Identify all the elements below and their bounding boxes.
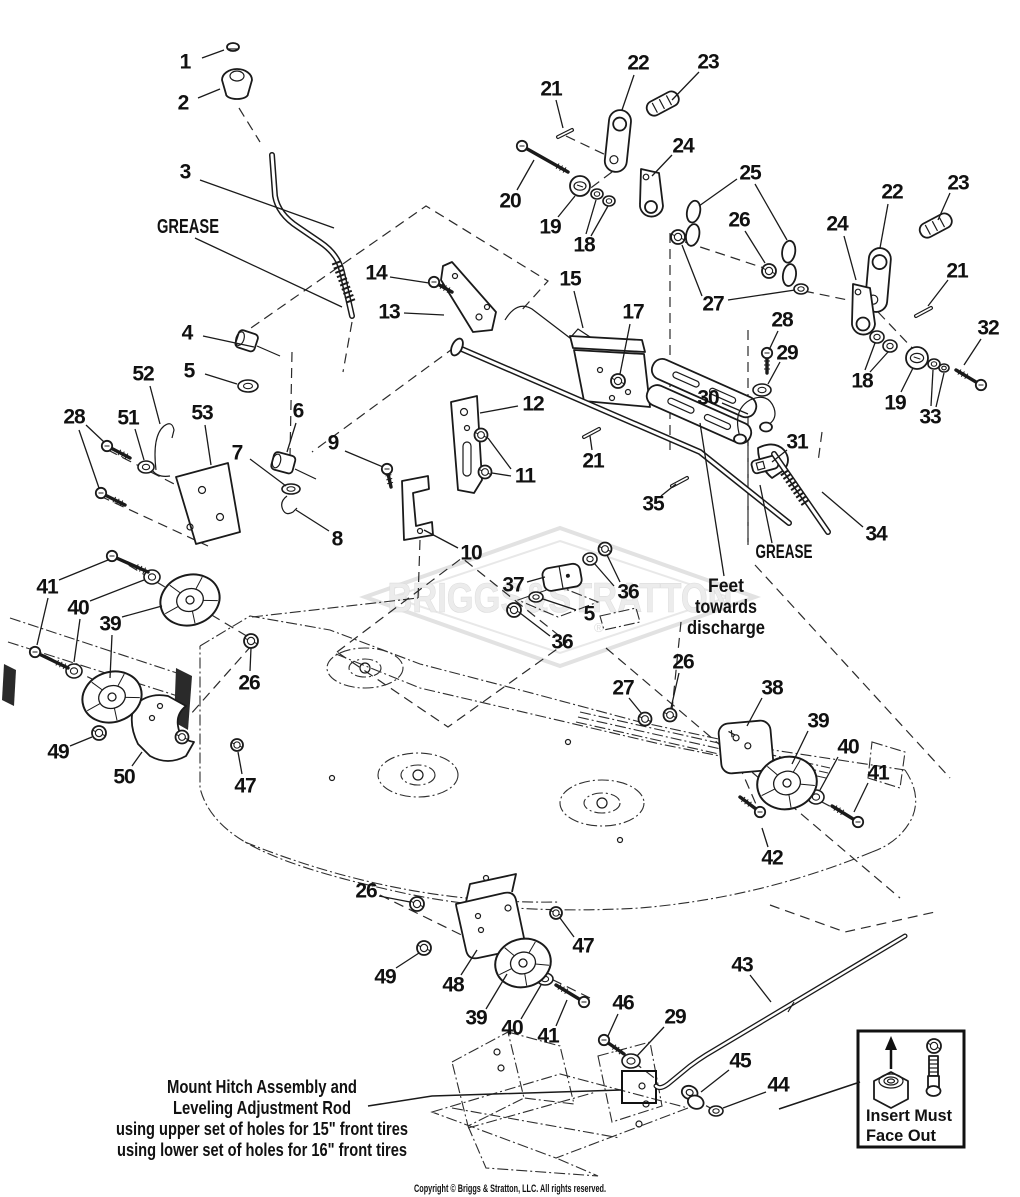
bolt (740, 797, 765, 817)
leader-line (205, 374, 237, 384)
grease-left-leader (195, 238, 342, 307)
leader-line (37, 598, 48, 645)
leader-line (701, 1070, 729, 1092)
lever-rod-part-3 (272, 155, 352, 316)
nut (417, 941, 431, 955)
part-callout-51: 51 (117, 407, 140, 430)
part-callout-25: 25 (739, 162, 762, 185)
bracket-part-10 (402, 476, 433, 540)
part-callout-39: 39 (807, 710, 829, 733)
bolt (96, 488, 125, 506)
spindle-boss-right (560, 780, 644, 826)
nut (611, 374, 625, 388)
part-callout-28: 28 (63, 406, 86, 429)
insert-note-box: Insert Must Face Out (858, 1031, 964, 1147)
part-callout-24: 24 (672, 135, 695, 158)
leader-line (238, 752, 242, 774)
leader-line (964, 339, 981, 365)
leader-line (480, 406, 518, 413)
part-callout-52: 52 (132, 363, 154, 386)
part-callout-17: 17 (622, 301, 644, 324)
washer (709, 1106, 723, 1116)
part-callout-26: 26 (672, 651, 694, 674)
part-callout-24: 24 (826, 213, 849, 236)
part-callout-45: 45 (729, 1050, 752, 1073)
grease-label-left: GREASE (157, 216, 219, 238)
bolt (832, 806, 863, 828)
leader-line (202, 50, 224, 58)
link-part-22-top (604, 109, 632, 173)
leader-line (865, 343, 875, 370)
part-callout-10: 10 (460, 542, 482, 565)
part-callout-21: 21 (540, 78, 563, 101)
insert-box-leader (779, 1082, 860, 1109)
hardware-parts (30, 130, 986, 1116)
washer (883, 340, 897, 352)
leader-line (396, 953, 419, 968)
leader-line (556, 1000, 567, 1026)
leader-line (723, 1092, 766, 1108)
leader-line (198, 89, 220, 98)
washer (529, 592, 543, 602)
leader-line (936, 373, 944, 407)
part-callout-36: 36 (617, 581, 639, 604)
leader-line (750, 975, 771, 1002)
leader-line (928, 280, 948, 306)
adjuster-knob (906, 347, 928, 369)
bolt (556, 985, 589, 1008)
insert-note-line-2: Face Out (866, 1126, 936, 1145)
leader-line (854, 783, 868, 812)
spindle-boss-left (327, 648, 403, 688)
part-callout-5: 5 (584, 603, 596, 626)
lift-lever-assembly (222, 43, 352, 316)
part-callout-28: 28 (771, 309, 794, 332)
gauge-wheel (154, 567, 227, 633)
nut (762, 264, 776, 278)
pin (584, 429, 599, 437)
washer (66, 664, 82, 678)
spring-part-23-right (917, 211, 954, 240)
part-callout-39: 39 (465, 1007, 487, 1030)
feet-note-leader (700, 423, 724, 576)
part-callout-46: 46 (612, 992, 634, 1015)
part-callout-12: 12 (522, 393, 544, 416)
copyright-text: Copyright © Briggs & Stratton, LLC. All … (414, 1183, 606, 1195)
leader-line (200, 180, 334, 228)
leader-line (637, 1027, 664, 1056)
part-callout-41: 41 (36, 576, 59, 599)
part-callout-18: 18 (573, 234, 596, 257)
leader-line (521, 985, 541, 1019)
part-callout-40: 40 (67, 597, 89, 620)
nut (671, 230, 685, 244)
part-callout-47: 47 (572, 935, 594, 958)
part-callout-40: 40 (837, 736, 859, 759)
mount-note-line-2: Leveling Adjustment Rod (173, 1098, 351, 1118)
leader-line (558, 196, 575, 217)
washer (603, 196, 615, 206)
lever-part-24-top (640, 169, 663, 217)
bracket-part-13 (441, 262, 496, 332)
leader-line (517, 160, 534, 190)
part-callout-49: 49 (47, 741, 69, 764)
leader-line (79, 430, 99, 488)
leader-line (880, 204, 888, 248)
mount-note-line-1: Mount Hitch Assembly and (167, 1077, 357, 1097)
bolt (599, 1035, 624, 1054)
part-callout-48: 48 (442, 974, 465, 997)
leader-line (135, 429, 144, 460)
part-callout-22: 22 (627, 52, 649, 75)
leader-line (629, 698, 642, 714)
part-callout-49: 49 (374, 966, 396, 989)
bracket-part-53 (176, 463, 240, 544)
bolt (956, 369, 986, 390)
part-callout-20: 20 (499, 190, 521, 213)
part-callout-11: 11 (515, 465, 537, 488)
feet-note-line-3: discharge (687, 618, 765, 639)
leader-line (672, 72, 699, 100)
bracket-part-12 (451, 396, 482, 493)
part-callout-1: 1 (180, 51, 192, 74)
leader-line (59, 560, 108, 580)
nut (475, 429, 488, 442)
gauge-wheel-brackets (132, 695, 774, 958)
part-callout-19: 19 (539, 216, 561, 239)
part-callout-27: 27 (702, 293, 724, 316)
part-callout-31: 31 (786, 431, 809, 454)
leader-line (404, 313, 444, 315)
spindle-boss-center (378, 753, 458, 797)
washer (939, 364, 949, 372)
leader-line (390, 277, 429, 283)
bolt (102, 441, 130, 459)
grease-label-right: GREASE (756, 542, 813, 563)
nut (927, 1039, 941, 1053)
nut (550, 907, 562, 919)
nut (231, 739, 243, 751)
part-callout-32: 32 (977, 317, 999, 340)
pin (558, 130, 572, 137)
washer (928, 359, 940, 369)
leader-line (699, 179, 737, 206)
part-callout-6: 6 (293, 400, 304, 423)
leader-line (728, 290, 795, 300)
nut (92, 726, 106, 740)
washer (794, 284, 808, 294)
pin (916, 308, 931, 316)
leader-line (90, 580, 144, 601)
leader-line (250, 648, 251, 671)
leader-line (574, 291, 583, 328)
nut (479, 466, 492, 479)
part-callout-36: 36 (551, 631, 573, 654)
leader-line (345, 451, 383, 467)
leader-line (901, 368, 913, 392)
leader-line (652, 155, 672, 176)
mount-note-line-3: using upper set of holes for 15" front t… (116, 1119, 408, 1139)
leader-line (745, 231, 765, 263)
mount-note-leader (368, 1090, 621, 1106)
part-callout-37: 37 (502, 574, 524, 597)
cap-part-1 (227, 43, 239, 51)
leader-line (486, 974, 507, 1009)
leader-line (122, 606, 162, 617)
part-callout-26: 26 (238, 672, 260, 695)
part-callout-29: 29 (664, 1006, 686, 1029)
leader-line (844, 236, 856, 280)
insert-note-line-1: Insert Must (866, 1106, 952, 1125)
part-callout-15: 15 (559, 268, 582, 291)
washer (138, 461, 154, 473)
leader-line (755, 184, 787, 240)
registered-mark: ® (594, 620, 604, 635)
feet-note-line-1: Feet (708, 576, 745, 597)
leader-line (682, 245, 702, 296)
coupler-part-6-7 (270, 451, 296, 474)
part-callout-38: 38 (761, 677, 784, 700)
chain-part-25-right (778, 240, 801, 287)
bolt (382, 464, 393, 487)
wire-part-52 (152, 424, 174, 477)
part-callout-19: 19 (884, 392, 906, 415)
leader-line (287, 423, 296, 452)
leader-line (822, 492, 863, 527)
lock-nut-illustration (874, 1072, 908, 1108)
nut (176, 731, 189, 744)
leader-line (492, 473, 511, 476)
part-callout-13: 13 (378, 301, 400, 324)
bolt (107, 551, 148, 573)
part-callout-7: 7 (232, 442, 243, 465)
part-callout-35: 35 (642, 493, 665, 516)
part-callout-8: 8 (332, 528, 344, 551)
leader-line (931, 370, 933, 406)
leader-line (150, 386, 160, 424)
feet-note-line-2: towards (695, 597, 757, 618)
part-callout-2: 2 (178, 92, 189, 115)
part-callout-21: 21 (946, 260, 969, 283)
bolt-illustration (927, 1056, 941, 1096)
part-callout-9: 9 (328, 432, 339, 455)
part-callout-3: 3 (180, 161, 191, 184)
part-callout-41: 41 (537, 1025, 560, 1048)
leader-line (762, 828, 768, 847)
part-callout-41: 41 (867, 762, 890, 785)
part-callout-18: 18 (851, 370, 874, 393)
part-callout-29: 29 (776, 342, 798, 365)
hairpin-part-8 (282, 496, 297, 514)
washer (870, 331, 884, 343)
bolt (517, 141, 568, 173)
part-callout-34: 34 (865, 523, 888, 546)
part-callout-4: 4 (182, 322, 194, 345)
bolt (30, 647, 68, 669)
nut (507, 603, 521, 617)
leader-line (608, 1014, 618, 1036)
nut (599, 543, 612, 556)
spring-part-23-top (644, 89, 681, 118)
part-callout-14: 14 (365, 262, 388, 285)
coupler-part-4 (233, 329, 259, 353)
part-callout-50: 50 (113, 766, 135, 789)
leader-line (379, 896, 410, 902)
part-callout-40: 40 (501, 1017, 523, 1040)
leader-line (424, 530, 458, 548)
part-callout-39: 39 (99, 613, 121, 636)
washer (753, 384, 771, 396)
mount-note-line-4: using lower set of holes for 16" front t… (117, 1140, 407, 1160)
leader-line (870, 352, 888, 372)
bolt (762, 348, 772, 373)
leader-line (556, 100, 563, 128)
grease-right-leader (760, 485, 772, 543)
part-callout-26: 26 (728, 209, 750, 232)
washer (591, 189, 603, 199)
part-callout-27: 27 (612, 677, 634, 700)
nut (244, 634, 258, 648)
washer (238, 380, 258, 392)
leader-line (205, 425, 211, 465)
part-callout-26: 26 (355, 880, 377, 903)
nut (664, 709, 677, 722)
leader-line (132, 752, 142, 766)
nut (639, 713, 652, 726)
part-callout-23: 23 (697, 51, 719, 74)
part-callout-47: 47 (234, 775, 256, 798)
part-callout-30: 30 (697, 387, 719, 410)
part-callout-42: 42 (761, 847, 783, 870)
part-callout-44: 44 (767, 1074, 790, 1097)
part-callout-43: 43 (731, 954, 753, 977)
adjuster-knob (570, 176, 590, 196)
leader-line (70, 737, 92, 746)
exploded-parts-diagram: BRIGGS&STRATTON ® (0, 0, 1020, 1197)
part-callout-23: 23 (947, 172, 969, 195)
part-callout-53: 53 (191, 402, 213, 425)
nut (410, 897, 424, 911)
bushing-part-45 (678, 1084, 708, 1111)
leader-line (296, 510, 329, 531)
parts-diagram-page: BRIGGS&STRATTON ® (0, 0, 1020, 1197)
part-callout-33: 33 (919, 406, 941, 429)
leader-line (86, 425, 104, 442)
part-callout-21: 21 (582, 450, 605, 473)
leader-line (820, 757, 838, 790)
leader-line (622, 75, 634, 110)
leader-line (488, 438, 511, 469)
leader-line (590, 436, 592, 450)
knob-part-2 (222, 69, 252, 99)
part-callout-5: 5 (184, 360, 196, 383)
part-callout-22: 22 (881, 181, 903, 204)
